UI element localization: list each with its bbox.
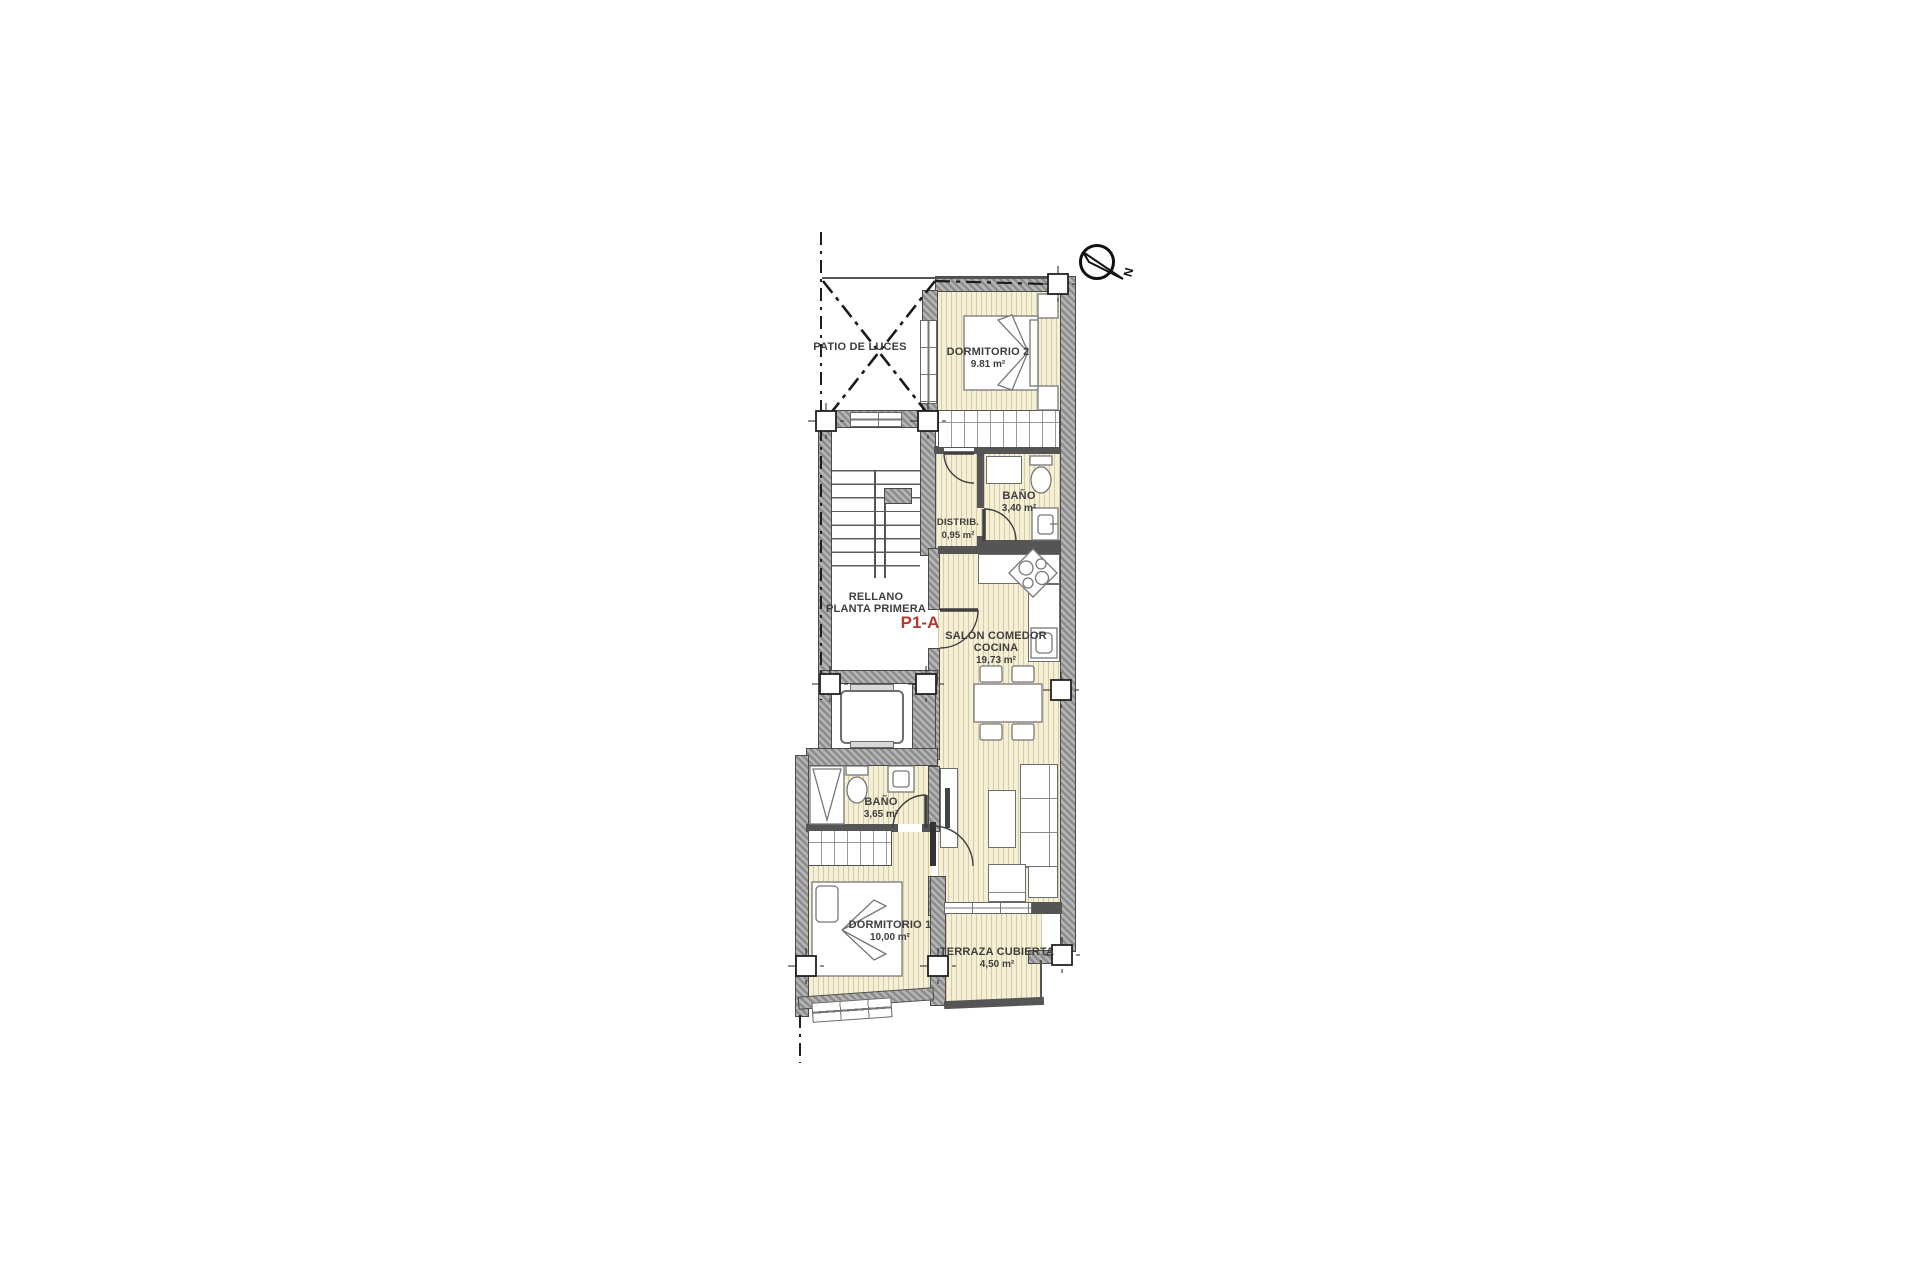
distribuidor-name: DISTRIB. bbox=[920, 517, 996, 529]
dormitorio1-label: DORMITORIO 1 10,00 m² bbox=[830, 919, 950, 944]
salon-area: 19,73 m² bbox=[936, 655, 1056, 667]
terraza-area: 4,50 m² bbox=[937, 959, 1057, 971]
column-marker bbox=[812, 666, 848, 702]
dormitorio2-label: DORMITORIO 2 9.81 m² bbox=[928, 346, 1048, 371]
column-marker bbox=[808, 403, 844, 439]
column-marker bbox=[908, 666, 944, 702]
dormitorio2-door bbox=[944, 453, 974, 483]
salon-label: SALÓN COMEDOR COCINA 19,73 m² bbox=[936, 630, 1056, 667]
dining-set-icon bbox=[974, 666, 1042, 740]
rellano-label: RELLANO PLANTA PRIMERA bbox=[816, 591, 936, 615]
dormitorio2-area: 9.81 m² bbox=[928, 359, 1048, 371]
bano2-area: 3,65 m² bbox=[841, 809, 921, 821]
bano2-sink-icon bbox=[888, 766, 914, 792]
bano1-name: BAÑO bbox=[979, 490, 1059, 502]
bano2-name: BAÑO bbox=[841, 796, 921, 808]
column-marker bbox=[910, 403, 946, 439]
dormitorio2-name: DORMITORIO 2 bbox=[928, 346, 1048, 358]
compass-north-icon: N bbox=[1081, 246, 1137, 280]
column-marker bbox=[1043, 672, 1079, 708]
dormitorio1-area: 10,00 m² bbox=[830, 932, 950, 944]
bano2-shower-icon bbox=[810, 766, 844, 824]
rellano-name-line1: RELLANO bbox=[816, 591, 936, 603]
patio-label: PATIO DE LUCES bbox=[790, 341, 930, 353]
stove-icon bbox=[1009, 549, 1057, 597]
dormitorio1-name: DORMITORIO 1 bbox=[830, 919, 950, 931]
bano1-area: 3,40 m² bbox=[979, 503, 1059, 515]
bano2-label: BAÑO 3,65 m² bbox=[841, 796, 921, 821]
bano1-label: BAÑO 3,40 m² bbox=[979, 490, 1059, 515]
patio-name: PATIO DE LUCES bbox=[790, 341, 930, 353]
salon-name-line2: COCINA bbox=[936, 642, 1056, 654]
distribuidor-area: 0,95 m² bbox=[920, 530, 996, 542]
floor-plan: N bbox=[0, 0, 1920, 1280]
distribuidor-label: DISTRIB. 0,95 m² bbox=[920, 517, 996, 542]
dormitorio1-door bbox=[933, 822, 973, 866]
bano1-toilet-icon bbox=[1030, 456, 1052, 493]
salon-name-line1: SALÓN COMEDOR bbox=[936, 630, 1056, 642]
terraza-label: TERRAZA CUBIERTA 4,50 m² bbox=[937, 946, 1057, 971]
terraza-name: TERRAZA CUBIERTA bbox=[937, 946, 1057, 958]
unit-code-label: P1-A bbox=[884, 617, 956, 629]
compass-label: N bbox=[1121, 266, 1137, 278]
